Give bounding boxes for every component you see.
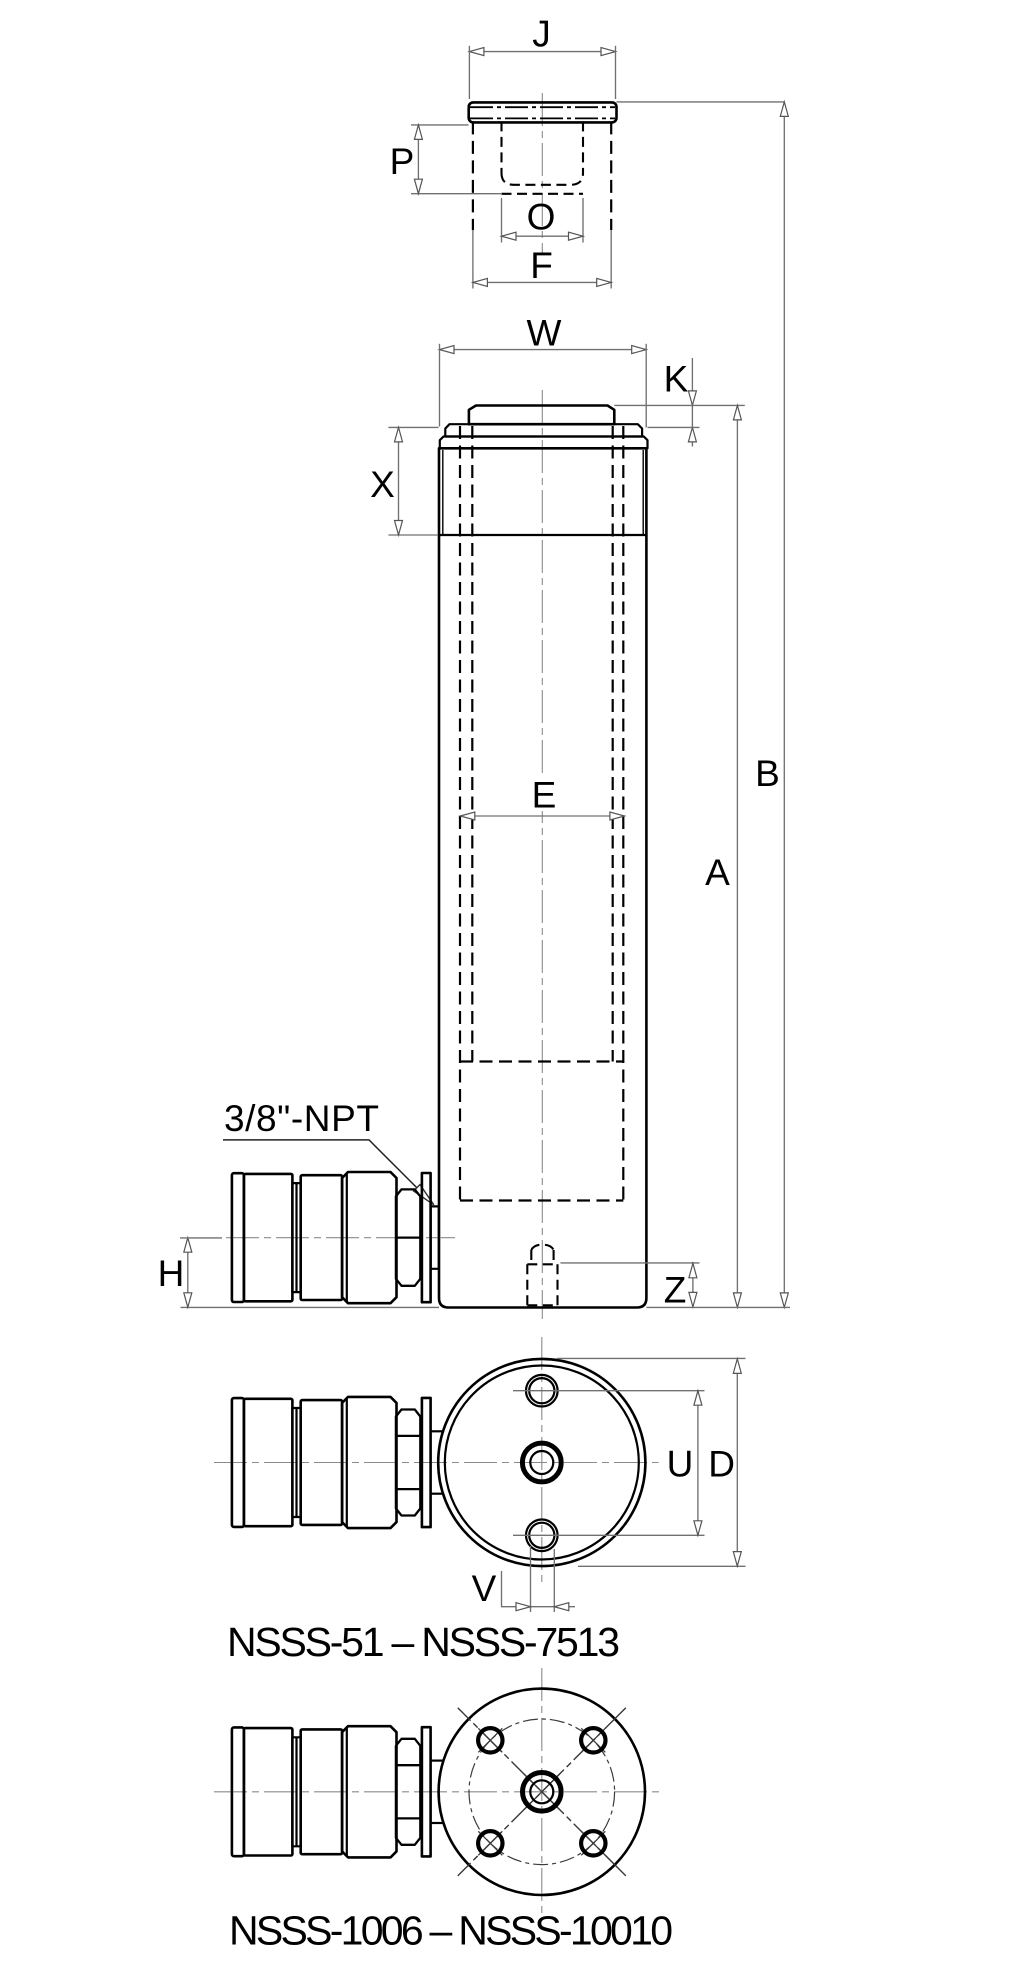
svg-text:O: O — [527, 197, 556, 238]
svg-text:U: U — [667, 1444, 694, 1485]
svg-text:F: F — [530, 245, 553, 286]
svg-text:E: E — [532, 774, 557, 815]
svg-text:NSSS-51 – NSSS-7513: NSSS-51 – NSSS-7513 — [227, 1619, 620, 1665]
svg-text:H: H — [158, 1253, 185, 1294]
svg-text:D: D — [708, 1444, 735, 1485]
svg-text:A: A — [705, 852, 730, 893]
svg-text:W: W — [527, 312, 562, 353]
svg-text:P: P — [390, 141, 415, 182]
svg-text:K: K — [664, 358, 689, 399]
svg-text:NSSS-1006 – NSSS-10010: NSSS-1006 – NSSS-10010 — [229, 1908, 673, 1954]
svg-text:J: J — [532, 14, 551, 55]
svg-text:X: X — [370, 464, 395, 505]
svg-text:3/8"-NPT: 3/8"-NPT — [224, 1098, 379, 1139]
svg-text:Z: Z — [664, 1269, 687, 1310]
svg-text:V: V — [472, 1568, 497, 1609]
svg-text:B: B — [755, 753, 780, 794]
